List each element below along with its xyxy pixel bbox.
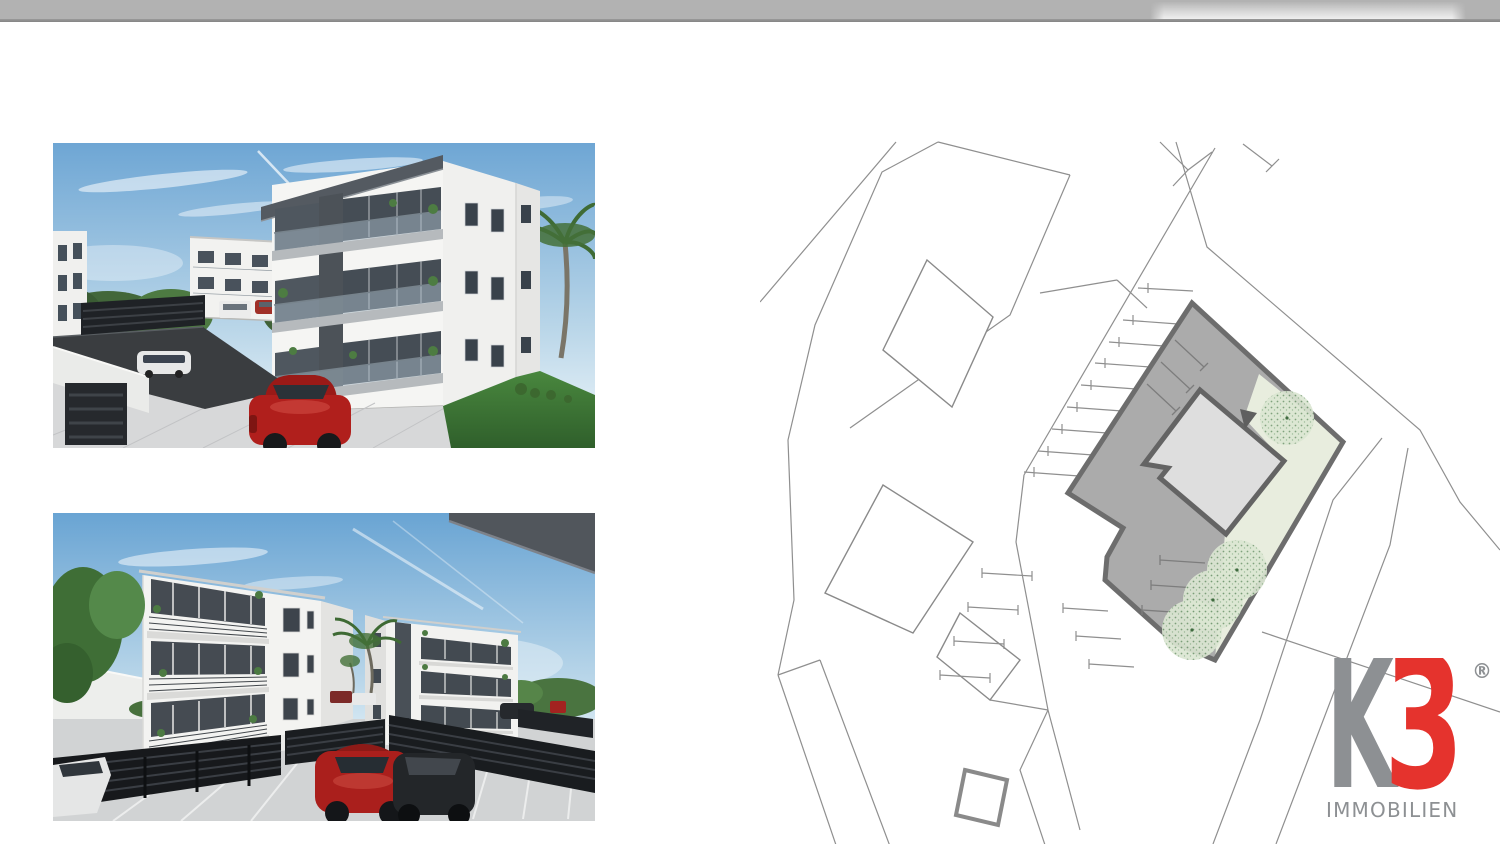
logo-subtitle: IMMOBILIEN (1326, 798, 1500, 822)
white-car (137, 351, 191, 378)
logo-digit-3: 3 (1384, 658, 1464, 796)
dark-suv (393, 753, 475, 821)
rendering-parking-view (53, 513, 595, 821)
exterior-rendering-bottom (53, 513, 595, 821)
rendering-street-view (53, 143, 595, 448)
k3-logo: K 3 ® IMMOBILIEN (1326, 658, 1500, 826)
window-top-bar (0, 0, 1500, 19)
exterior-rendering-top (53, 143, 595, 448)
brochure-page: K 3 ® IMMOBILIEN (0, 0, 1500, 844)
main-building (261, 155, 540, 412)
top-bar-edge (0, 19, 1500, 22)
small-garage-square (956, 770, 1007, 825)
balcony-floors (272, 187, 443, 405)
k3-logo-mark: K 3 ® (1326, 658, 1500, 796)
registered-trademark-icon: ® (1472, 659, 1492, 683)
scrollbar-thumb[interactable] (1150, 2, 1466, 26)
highlighted-plot (1068, 303, 1343, 660)
neighbour-buildings (825, 260, 1020, 700)
balconies (419, 637, 513, 734)
